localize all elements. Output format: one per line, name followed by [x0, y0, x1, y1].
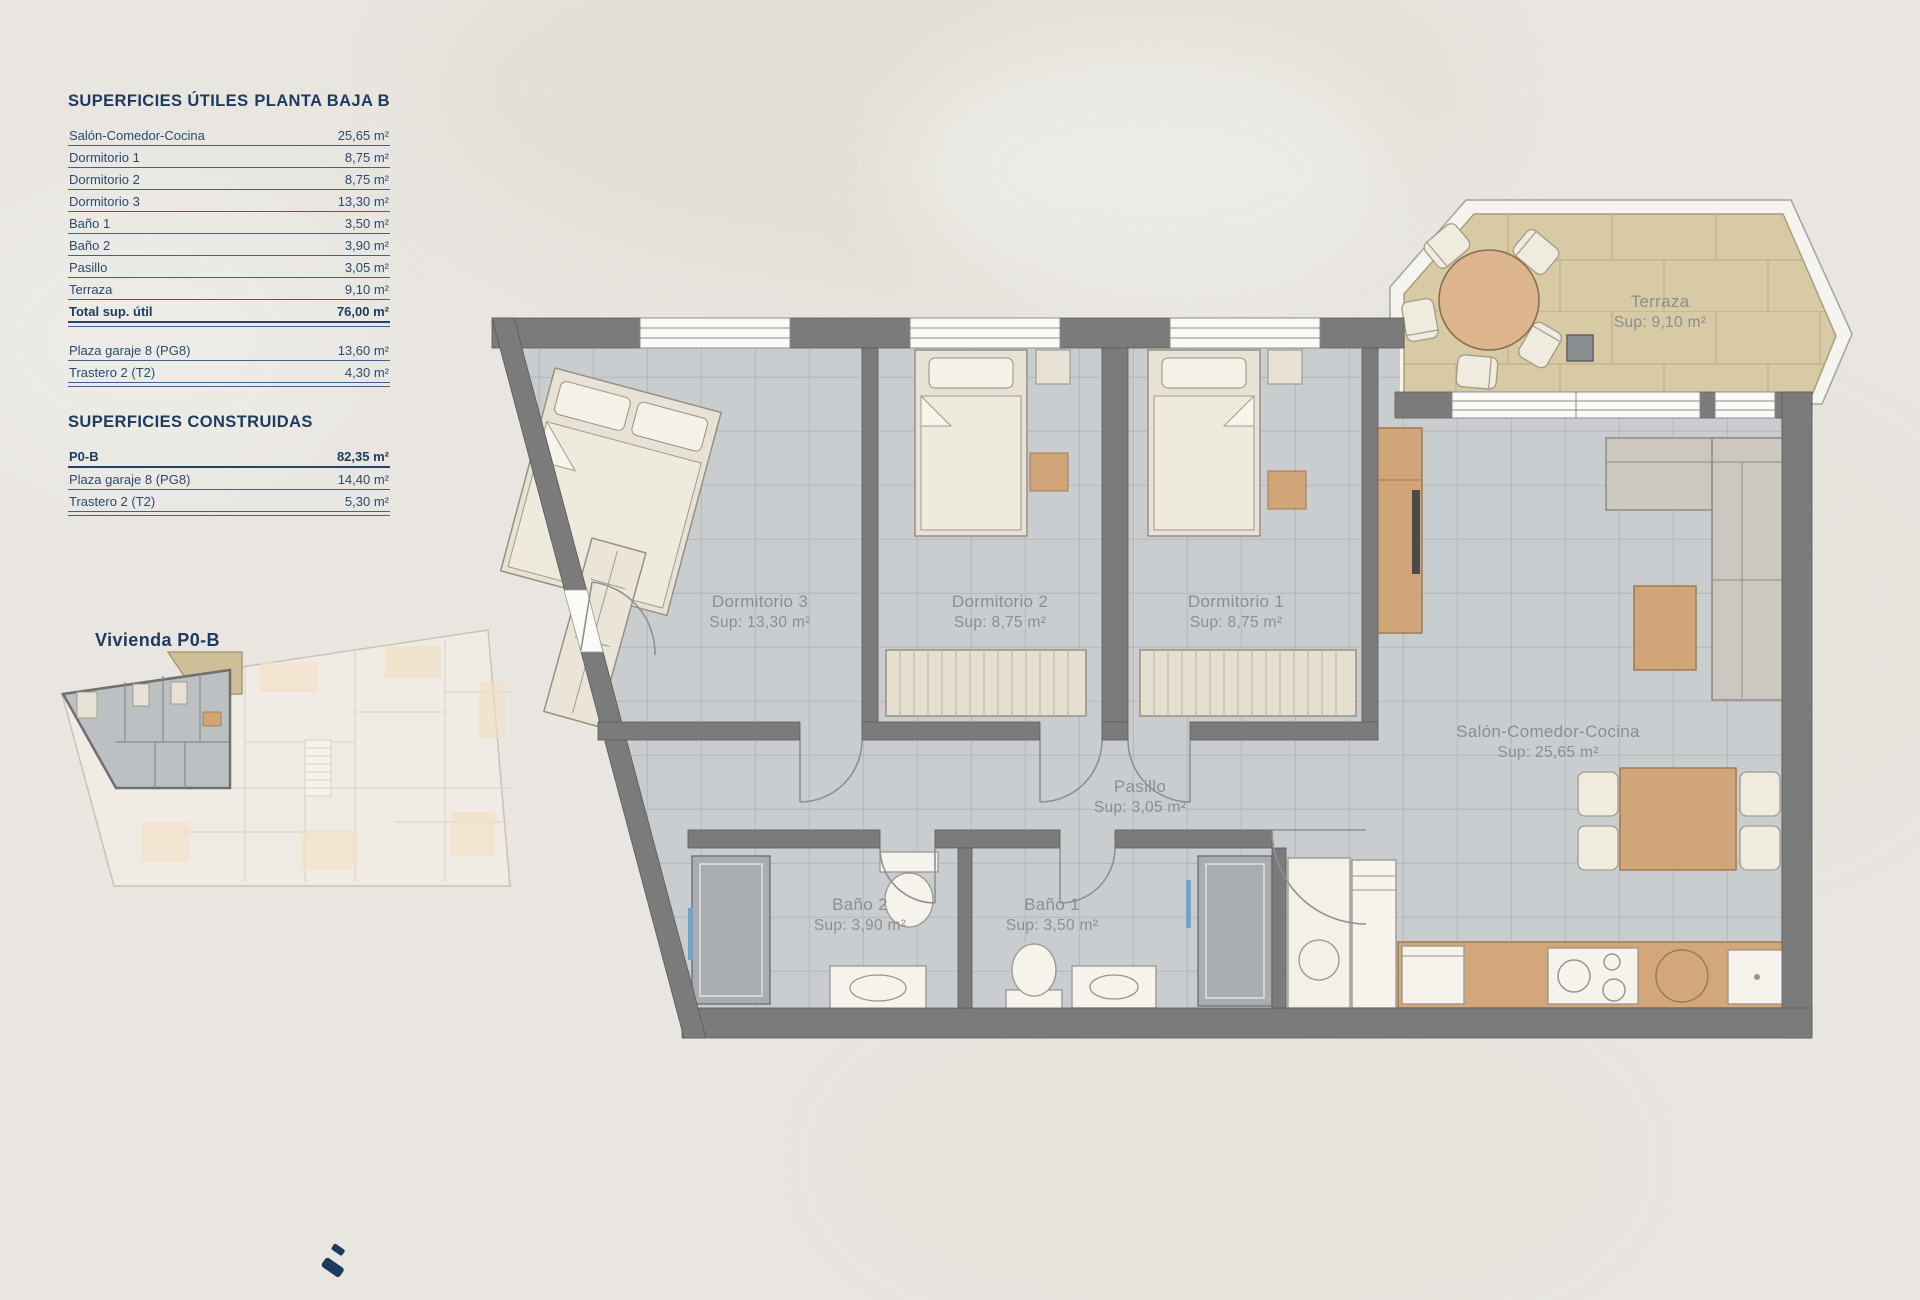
single-bed — [1148, 350, 1260, 536]
room-name: Salón-Comedor-Cocina — [1456, 722, 1640, 741]
room-label-pasillo: Pasillo Sup: 3,05 m² — [1094, 776, 1186, 818]
towel-rail — [688, 908, 693, 960]
wardrobe — [1140, 650, 1356, 716]
room-label-dormitorio1: Dormitorio 1 Sup: 8,75 m² — [1188, 591, 1284, 633]
bedside-table — [1036, 350, 1070, 384]
shower — [692, 856, 770, 1004]
kitchen-counter — [1398, 942, 1786, 1008]
logo-mark — [320, 1242, 360, 1280]
room-area: Sup: 3,05 m² — [1094, 798, 1186, 818]
room-name: Dormitorio 1 — [1188, 592, 1284, 611]
room-area: Sup: 3,90 m² — [814, 916, 906, 936]
sink — [1072, 966, 1156, 1008]
room-area: Sup: 25,65 m² — [1456, 743, 1640, 763]
sink — [830, 966, 926, 1010]
room-name: Terraza — [1631, 292, 1690, 311]
stairs — [305, 740, 331, 796]
room-area: Sup: 3,50 m² — [1006, 916, 1098, 936]
room-name: Baño 1 — [1024, 895, 1080, 914]
room-name: Dormitorio 2 — [952, 592, 1048, 611]
sideboard — [1634, 586, 1696, 670]
room-area: Sup: 8,75 m² — [952, 613, 1048, 633]
room-label-bano1: Baño 1 Sup: 3,50 m² — [1006, 894, 1098, 936]
terrace-drain — [1567, 335, 1593, 361]
towel-rail — [1186, 880, 1191, 928]
room-name: Pasillo — [1114, 777, 1166, 796]
desk — [1268, 471, 1306, 509]
wardrobe — [886, 650, 1086, 716]
room-name: Dormitorio 3 — [712, 592, 808, 611]
shower — [1198, 856, 1272, 1006]
room-area: Sup: 13,30 m² — [709, 613, 810, 633]
key-plan-drawing — [55, 622, 525, 902]
room-label-salon: Salón-Comedor-Cocina Sup: 25,65 m² — [1456, 721, 1640, 763]
room-area: Sup: 8,75 m² — [1188, 613, 1284, 633]
tv-unit — [1372, 428, 1422, 633]
desk — [1030, 453, 1068, 491]
room-name: Baño 2 — [832, 895, 888, 914]
room-label-dormitorio3: Dormitorio 3 Sup: 13,30 m² — [709, 591, 810, 633]
room-label-dormitorio2: Dormitorio 2 Sup: 8,75 m² — [952, 591, 1048, 633]
room-label-terraza: Terraza Sup: 9,10 m² — [1614, 291, 1706, 333]
utility-column — [1352, 860, 1396, 1008]
single-bed — [915, 350, 1027, 536]
storage-cabinet — [1288, 858, 1350, 1008]
room-area: Sup: 9,10 m² — [1614, 313, 1706, 333]
room-label-bano2: Baño 2 Sup: 3,90 m² — [814, 894, 906, 936]
bedside-table — [1268, 350, 1302, 384]
